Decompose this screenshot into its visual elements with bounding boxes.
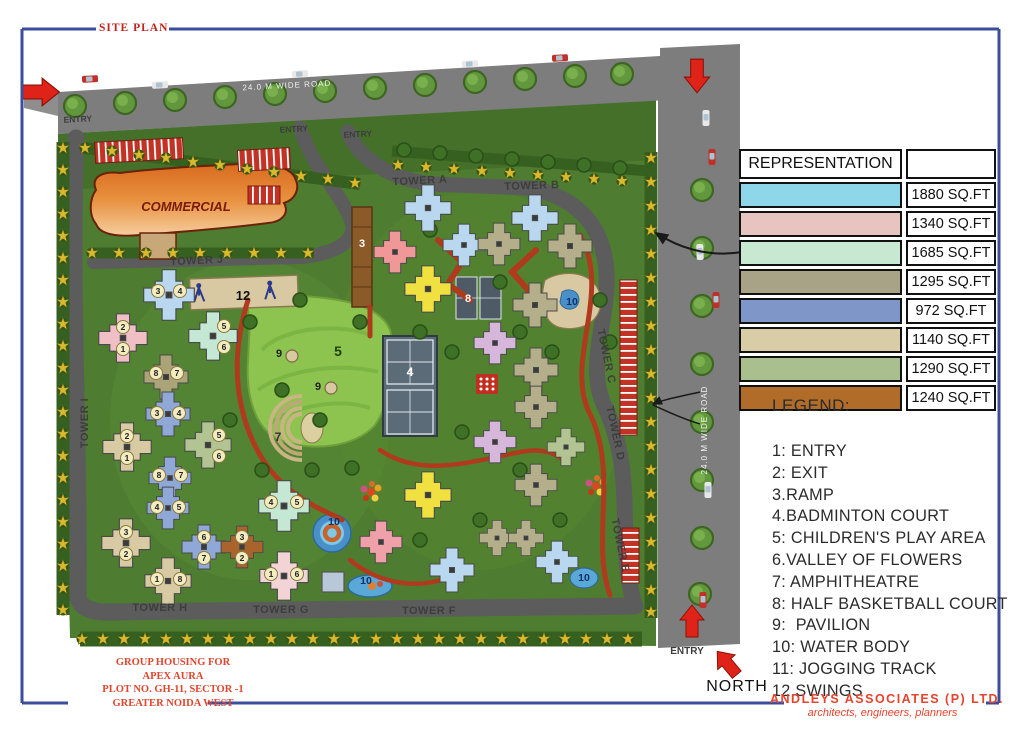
pavilion-marker-1: 9: [276, 348, 282, 360]
svg-text:5: 5: [217, 430, 222, 440]
swatch-1140: [739, 327, 902, 353]
representation-header-row: REPRESENTATION: [739, 149, 996, 179]
representation-header-blank: [906, 149, 996, 179]
project-line: GROUP HOUSING FOR: [78, 656, 268, 670]
svg-text:7: 7: [179, 470, 184, 480]
sheet-title: SITE PLAN: [99, 22, 168, 34]
svg-text:TOWER G: TOWER G: [253, 604, 309, 616]
legend-item: 4.BADMINTON COURT: [772, 506, 1008, 528]
project-city: GREATER NOIDA WEST: [78, 697, 268, 711]
legend-item: 2: EXIT: [772, 463, 1008, 485]
svg-text:8: 8: [157, 470, 162, 480]
swings-marker: 12: [236, 288, 250, 303]
water-marker-1: 10: [328, 516, 340, 528]
table-row: 972 SQ.FT: [739, 298, 996, 324]
area-value: 1685 SQ.FT: [906, 240, 996, 266]
basketball-marker: 8: [465, 293, 471, 305]
swatch-1340: [739, 211, 902, 237]
area-value: 1290 SQ.FT: [906, 356, 996, 382]
legend-item: 6.VALLEY OF FLOWERS: [772, 550, 1008, 572]
svg-text:2: 2: [121, 322, 126, 332]
entry-label-bottom: ENTRY: [670, 646, 704, 657]
table-row: 1685 SQ.FT: [739, 240, 996, 266]
representation-table: REPRESENTATION 1880 SQ.FT 1340 SQ.FT 168…: [739, 149, 996, 414]
project-title-block: GROUP HOUSING FOR APEX AURA PLOT NO. GH-…: [78, 656, 268, 710]
svg-text:6: 6: [295, 569, 300, 579]
water-marker-4: 10: [578, 572, 590, 584]
legend-title: LEGEND:: [772, 396, 1008, 416]
svg-text:6: 6: [222, 342, 227, 352]
svg-text:1: 1: [121, 344, 126, 354]
area-value: 1140 SQ.FT: [906, 327, 996, 353]
legend-item: 9: PAVILION: [772, 615, 1008, 637]
ramp-marker: 3: [359, 238, 365, 250]
svg-text:5: 5: [295, 497, 300, 507]
legend-item: 3.RAMP: [772, 485, 1008, 507]
swatch-1295: [739, 269, 902, 295]
table-row: 1290 SQ.FT: [739, 356, 996, 382]
legend-item: 10: WATER BODY: [772, 637, 1008, 659]
svg-text:8: 8: [154, 368, 159, 378]
svg-text:1: 1: [155, 574, 160, 584]
legend-item: 8: HALF BASKETBALL COURT: [772, 594, 1008, 616]
representation-header: REPRESENTATION: [739, 149, 902, 179]
legend-item: 11: JOGGING TRACK: [772, 659, 1008, 681]
legend-item: 5: CHILDREN'S PLAY AREA: [772, 528, 1008, 550]
water-marker-2: 10: [360, 575, 372, 587]
svg-text:3: 3: [240, 532, 245, 542]
svg-text:5: 5: [177, 502, 182, 512]
svg-text:6: 6: [202, 532, 207, 542]
entry-label-mid-2: ENTRY: [343, 128, 372, 139]
project-plot: PLOT NO. GH-11, SECTOR -1: [78, 683, 268, 697]
svg-text:3: 3: [156, 286, 161, 296]
svg-text:4: 4: [177, 408, 182, 418]
svg-text:4: 4: [155, 502, 160, 512]
table-row: 1340 SQ.FT: [739, 211, 996, 237]
north-label: NORTH: [706, 678, 768, 695]
svg-text:2: 2: [240, 553, 245, 563]
amphitheatre-marker: 7: [275, 430, 282, 444]
swatch-972: [739, 298, 902, 324]
area-value: 1295 SQ.FT: [906, 269, 996, 295]
svg-text:TOWER H: TOWER H: [132, 602, 187, 614]
svg-text:5: 5: [222, 321, 227, 331]
legend: LEGEND: 1: ENTRY 2: EXIT 3.RAMP 4.BADMIN…: [772, 396, 1008, 703]
svg-text:2: 2: [125, 431, 130, 441]
svg-text:4: 4: [269, 497, 274, 507]
svg-text:TOWER I: TOWER I: [79, 398, 91, 448]
svg-text:3: 3: [124, 527, 129, 537]
swatch-1880: [739, 182, 902, 208]
firm-block: ANDLEYS ASSOCIATES (P) LTD. architects, …: [770, 692, 995, 719]
table-row: 1140 SQ.FT: [739, 327, 996, 353]
area-value: 972 SQ.FT: [906, 298, 996, 324]
commercial-label: COMMERCIAL: [141, 199, 231, 214]
svg-text:2: 2: [124, 549, 129, 559]
ramp: [352, 207, 372, 307]
swatch-1685: [739, 240, 902, 266]
svg-text:1: 1: [125, 453, 130, 463]
svg-text:1: 1: [269, 569, 274, 579]
table-row: 1880 SQ.FT: [739, 182, 996, 208]
water-marker-3: 10: [566, 296, 578, 308]
table-row: 1295 SQ.FT: [739, 269, 996, 295]
legend-item: 1: ENTRY: [772, 441, 1008, 463]
firm-name: ANDLEYS ASSOCIATES (P) LTD.: [770, 692, 995, 706]
legend-list: 1: ENTRY 2: EXIT 3.RAMP 4.BADMINTON COUR…: [772, 441, 1008, 703]
firm-tagline: architects, engineers, planners: [770, 707, 995, 719]
svg-text:8: 8: [178, 574, 183, 584]
svg-text:7: 7: [175, 368, 180, 378]
svg-text:6: 6: [217, 451, 222, 461]
entry-label-left: ENTRY: [63, 113, 92, 124]
swatch-1290: [739, 356, 902, 382]
north-compass: NORTH: [706, 644, 768, 695]
project-name: APEX AURA: [78, 670, 268, 684]
area-value: 1340 SQ.FT: [906, 211, 996, 237]
entry-label-mid-1: ENTRY: [279, 123, 308, 134]
badminton-court: [383, 336, 437, 436]
area-value: 1880 SQ.FT: [906, 182, 996, 208]
svg-text:TOWER B: TOWER B: [504, 179, 560, 193]
svg-text:TOWER F: TOWER F: [402, 605, 456, 617]
badminton-marker: 4: [407, 365, 414, 379]
pavilion-marker-2: 9: [315, 381, 321, 393]
red-dot-court: [476, 374, 498, 394]
site-plan-sheet: COMMERCIAL: [0, 0, 1024, 731]
north-arrow-icon: [708, 644, 745, 682]
right-road-label: 24.0 M WIDE ROAD: [700, 386, 709, 475]
svg-text:7: 7: [202, 553, 207, 563]
play-area-marker: 5: [334, 343, 342, 359]
svg-text:3: 3: [155, 408, 160, 418]
svg-text:4: 4: [178, 286, 183, 296]
legend-item: 7: AMPHITHEATRE: [772, 572, 1008, 594]
